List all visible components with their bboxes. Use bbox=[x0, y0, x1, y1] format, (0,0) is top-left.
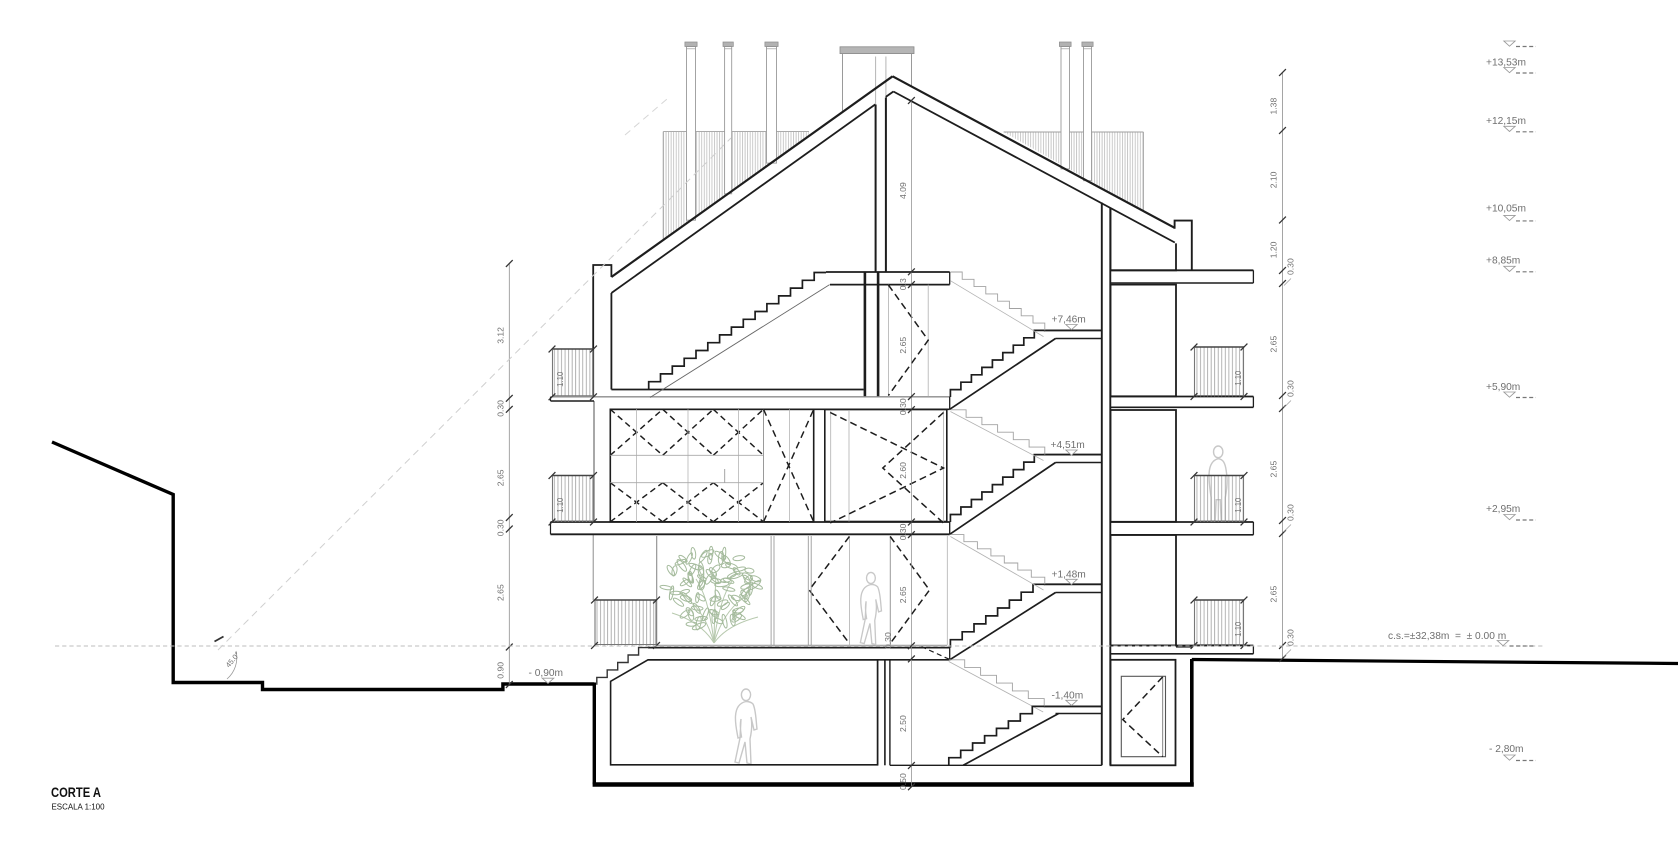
svg-text:- 0,90m: - 0,90m bbox=[529, 668, 564, 679]
svg-text:+13,53m: +13,53m bbox=[1486, 58, 1526, 69]
svg-text:1.10: 1.10 bbox=[1234, 497, 1243, 513]
svg-text:+5,90m: +5,90m bbox=[1486, 382, 1520, 393]
svg-text:1.20: 1.20 bbox=[1269, 241, 1279, 258]
svg-text:0.30: 0.30 bbox=[883, 632, 893, 649]
svg-text:+10,05m: +10,05m bbox=[1486, 204, 1526, 215]
svg-text:0.30: 0.30 bbox=[898, 398, 908, 415]
svg-text:c.s.=±32,38m = ± 0.00 m: c.s.=±32,38m = ± 0.00 m bbox=[1388, 631, 1506, 642]
svg-text:1.38: 1.38 bbox=[1269, 98, 1279, 115]
svg-text:1.10: 1.10 bbox=[556, 497, 565, 513]
svg-text:2.65: 2.65 bbox=[1269, 461, 1279, 478]
svg-text:+2,95m: +2,95m bbox=[1486, 504, 1520, 515]
svg-text:0.50: 0.50 bbox=[898, 773, 908, 790]
svg-text:2.65: 2.65 bbox=[1269, 336, 1279, 353]
svg-text:2.60: 2.60 bbox=[898, 462, 908, 479]
svg-text:2.65: 2.65 bbox=[898, 337, 908, 354]
svg-text:1.10: 1.10 bbox=[1234, 370, 1243, 386]
svg-text:2.65: 2.65 bbox=[1269, 586, 1279, 603]
svg-text:1.10: 1.10 bbox=[556, 371, 565, 387]
svg-text:0.30: 0.30 bbox=[1286, 380, 1296, 397]
svg-text:- 2,80m: - 2,80m bbox=[1489, 744, 1524, 755]
svg-text:0.90: 0.90 bbox=[496, 662, 506, 679]
svg-text:+4,51m: +4,51m bbox=[1051, 440, 1085, 451]
svg-text:CORTE A: CORTE A bbox=[51, 785, 101, 800]
svg-text:0.3: 0.3 bbox=[898, 278, 908, 290]
svg-text:+12,15m: +12,15m bbox=[1486, 116, 1526, 127]
svg-text:4.09: 4.09 bbox=[898, 182, 908, 199]
svg-text:-1,40m: -1,40m bbox=[1052, 691, 1084, 702]
svg-text:2.65: 2.65 bbox=[496, 469, 506, 486]
svg-text:2.65: 2.65 bbox=[496, 584, 506, 601]
svg-text:+1,48m: +1,48m bbox=[1052, 570, 1086, 581]
svg-text:ESCALA 1:100: ESCALA 1:100 bbox=[52, 802, 105, 812]
svg-text:2.50: 2.50 bbox=[898, 715, 908, 732]
svg-text:2.65: 2.65 bbox=[898, 586, 908, 603]
svg-text:1.10: 1.10 bbox=[1234, 621, 1243, 637]
svg-text:+8,85m: +8,85m bbox=[1486, 255, 1520, 266]
svg-text:0.30: 0.30 bbox=[1286, 504, 1296, 521]
svg-text:+7,46m: +7,46m bbox=[1052, 314, 1086, 325]
svg-text:0.30: 0.30 bbox=[496, 400, 506, 417]
svg-text:2.10: 2.10 bbox=[1269, 171, 1279, 188]
svg-text:0.30: 0.30 bbox=[898, 523, 908, 540]
svg-text:0.30: 0.30 bbox=[496, 519, 506, 536]
svg-text:3.12: 3.12 bbox=[496, 327, 506, 344]
svg-text:0.30: 0.30 bbox=[1286, 629, 1296, 646]
svg-text:0.30: 0.30 bbox=[1286, 258, 1296, 275]
